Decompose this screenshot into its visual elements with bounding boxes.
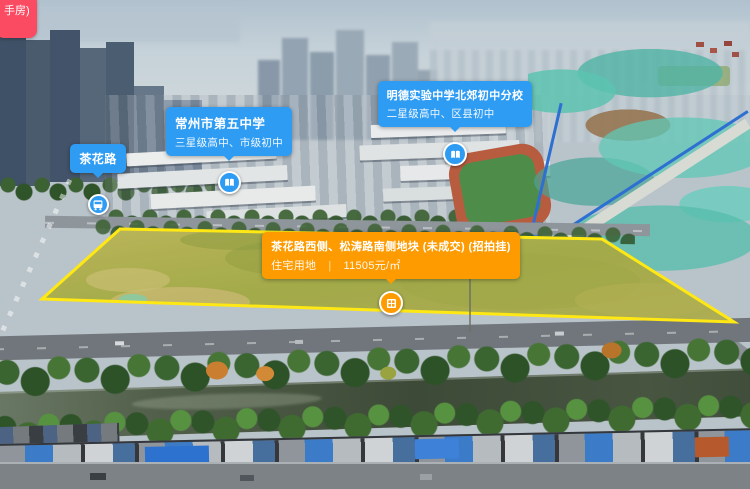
school-label-bubble[interactable]: 明德实验中学北郊初中分校 二星级高中、区县初中 [378, 81, 533, 127]
land-parcel-icon [385, 297, 398, 310]
parcel-title: 茶花路西侧、松涛路南侧地块 (未成交) (招拍挂) [271, 238, 511, 254]
bus-icon [92, 199, 104, 211]
school-pin[interactable] [218, 171, 241, 194]
school-book-icon [449, 148, 462, 161]
secondhand-house-button[interactable]: 手房) [0, 0, 37, 38]
school-pin[interactable] [443, 142, 467, 166]
bubble-tail [385, 278, 397, 290]
bus-pin[interactable] [88, 194, 109, 215]
land-parcel-pin[interactable] [379, 291, 403, 315]
bubble-tail [223, 155, 235, 167]
map-viewport[interactable]: 手房) 茶花路 常州市第五中学 三星级高中、市级初中 [0, 0, 750, 489]
school-grade: 二星级高中、区县初中 [387, 106, 524, 121]
school-name: 明德实验中学北郊初中分校 [387, 87, 524, 103]
bubble-tail [449, 126, 461, 138]
secondhand-house-button-label: 手房) [4, 5, 30, 17]
school-label-bubble[interactable]: 常州市第五中学 三星级高中、市级初中 [166, 107, 292, 156]
school-grade: 三星级高中、市级初中 [175, 135, 283, 150]
parcel-price: 11505元/㎡ [343, 260, 400, 272]
school-marker-mingde[interactable]: 明德实验中学北郊初中分校 二星级高中、区县初中 [305, 81, 605, 166]
parcel-marker[interactable]: 茶花路西侧、松涛路南侧地块 (未成交) (招拍挂) 住宅用地|11505元/㎡ [241, 232, 541, 315]
parcel-land-use: 住宅用地 [271, 260, 316, 272]
parcel-label-bubble[interactable]: 茶花路西侧、松涛路南侧地块 (未成交) (招拍挂) 住宅用地|11505元/㎡ [262, 232, 520, 279]
school-book-icon [223, 176, 236, 189]
school-name: 常州市第五中学 [175, 113, 283, 132]
divider: | [328, 260, 331, 272]
parcel-details: 住宅用地|11505元/㎡ [271, 257, 511, 273]
